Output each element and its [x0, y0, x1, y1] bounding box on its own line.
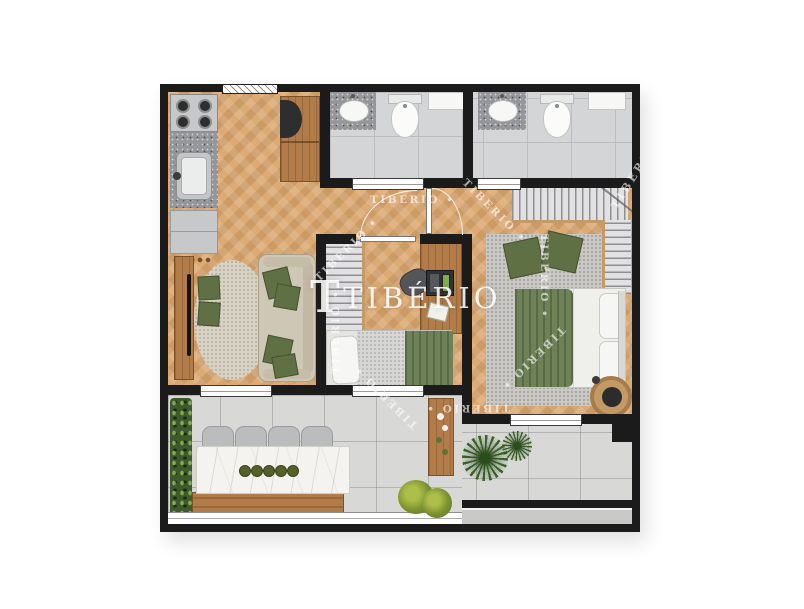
laptop-icon [426, 270, 454, 296]
fridge-icon [170, 210, 218, 254]
sofa [258, 254, 316, 382]
master-window [510, 414, 582, 426]
bathroom-2-window [588, 92, 626, 110]
wall-segment [320, 92, 330, 188]
table-plant-icon [287, 465, 299, 477]
double-bed [514, 288, 626, 388]
wall-segment [160, 524, 640, 532]
bathroom-2-vanity [478, 92, 526, 130]
bedroom2-closet [326, 240, 365, 332]
table-plant-icon [275, 465, 287, 477]
bathroom-1-vanity [330, 92, 376, 130]
stove-icon [170, 94, 218, 132]
round-chair [590, 376, 632, 418]
wall-segment [632, 92, 640, 524]
bush-plant-icon [422, 488, 452, 518]
dining-table [196, 446, 350, 494]
balcony-bench [428, 398, 454, 476]
fern-plant-icon [502, 431, 532, 461]
wall-segment [612, 424, 632, 442]
living-balcony-slider [200, 385, 272, 397]
kitchen-sink-icon [176, 152, 212, 200]
vertical-garden [170, 398, 192, 520]
bathroom-2-door [477, 178, 521, 190]
single-bed [326, 330, 452, 388]
bedroom2-balcony-slider [352, 385, 424, 397]
apartment-floor-plan: TIBERIO • TIBERIO • TIBERIO • TIBERIO • … [160, 84, 640, 532]
wall-segment [463, 92, 473, 178]
floor-plan-canvas: TIBERIO • TIBERIO • TIBERIO • TIBERIO • … [0, 0, 804, 609]
tv-console [174, 256, 194, 380]
master-closet-side [602, 220, 631, 294]
table-plant-icon [251, 465, 263, 477]
balcony-parapet [462, 500, 632, 508]
table-plant-icon [239, 465, 251, 477]
toilet-icon-2 [543, 101, 571, 138]
bathroom-1-window [428, 92, 464, 110]
pouf [503, 237, 546, 280]
tv-icon [187, 274, 191, 356]
wall-segment [160, 92, 168, 524]
ottoman [197, 275, 220, 300]
bathroom-1-door [352, 178, 424, 190]
fern-plant-icon [462, 435, 508, 481]
wall-segment [462, 234, 472, 424]
toilet-icon-1 [391, 101, 419, 138]
entry-door [222, 84, 278, 94]
table-plant-icon [263, 465, 275, 477]
ottoman [197, 301, 221, 326]
wall-segment [316, 234, 326, 395]
